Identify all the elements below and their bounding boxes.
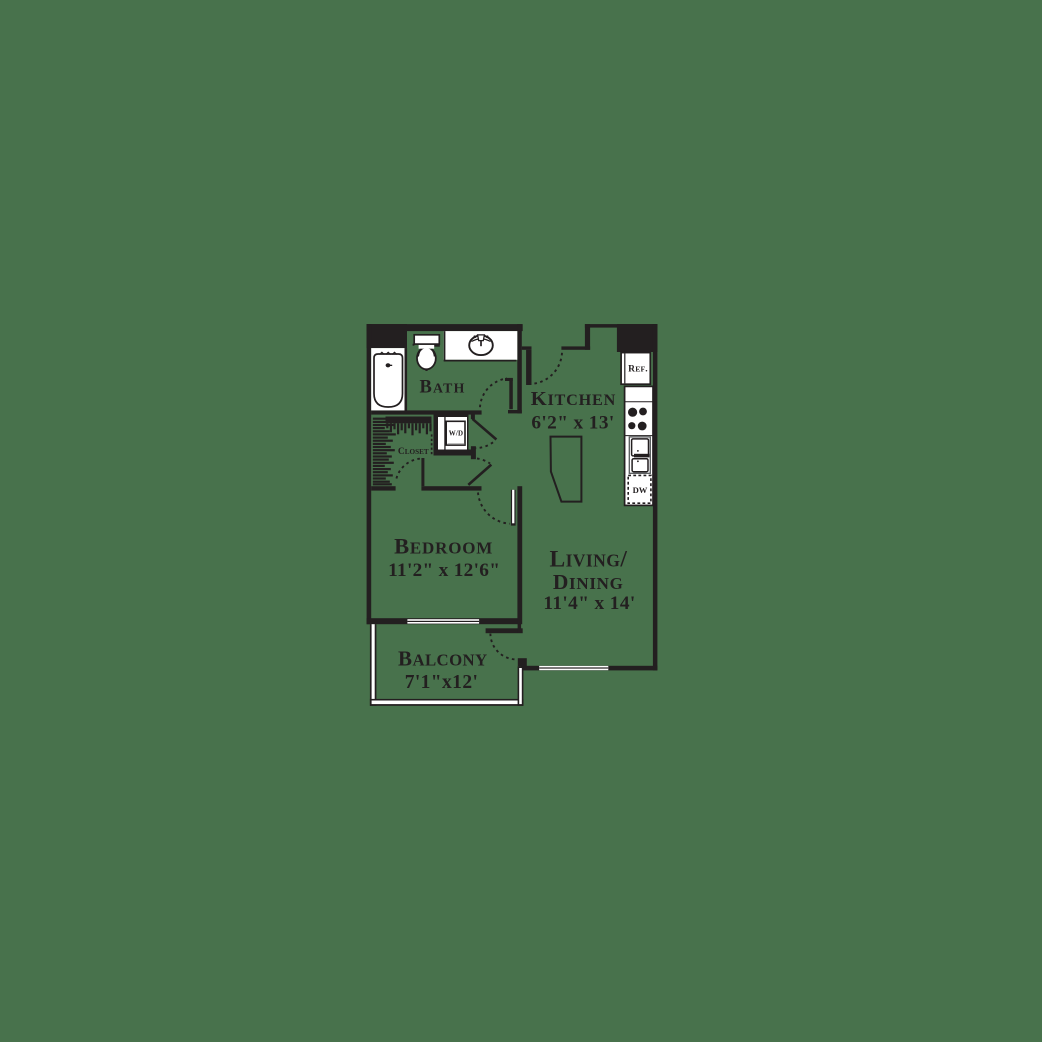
svg-text:11'2" x 12'6": 11'2" x 12'6" — [388, 560, 500, 581]
svg-text:W/D: W/D — [449, 429, 464, 437]
svg-text:11'4" x 14': 11'4" x 14' — [543, 593, 635, 614]
svg-text:LIVING/: LIVING/ — [549, 547, 627, 573]
svg-text:BALCONY: BALCONY — [398, 647, 488, 671]
svg-text:BATH: BATH — [419, 377, 465, 397]
svg-text:6'2" x 13': 6'2" x 13' — [531, 413, 614, 434]
svg-text:7'1"x12': 7'1"x12' — [405, 672, 479, 693]
svg-text:REF.: REF. — [628, 365, 648, 375]
svg-text:BEDROOM: BEDROOM — [394, 534, 493, 559]
svg-text:CLOSET: CLOSET — [398, 447, 429, 457]
svg-text:DINING: DINING — [553, 570, 624, 594]
svg-text:DW: DW — [633, 485, 648, 495]
svg-text:KITCHEN: KITCHEN — [531, 388, 616, 410]
